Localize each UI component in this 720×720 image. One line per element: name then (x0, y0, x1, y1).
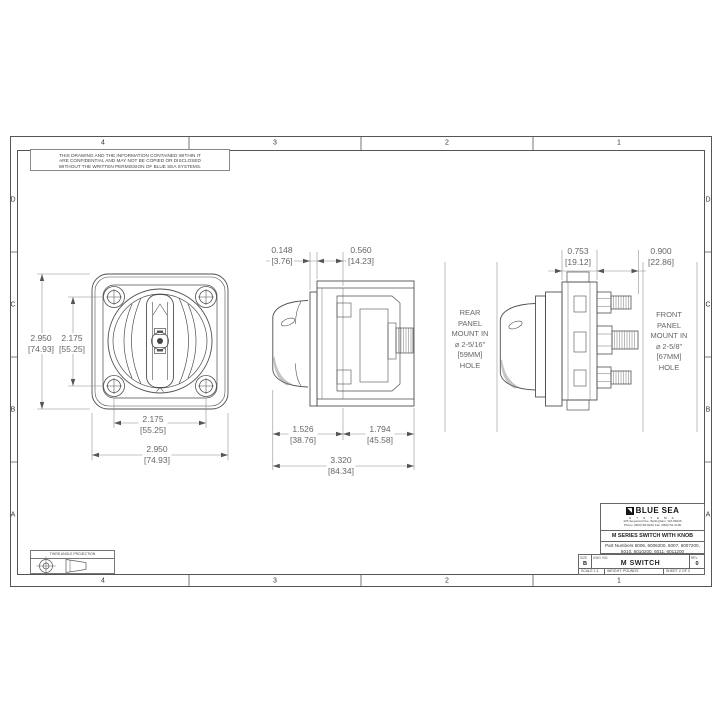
zone-col-4-top: 4 (101, 140, 105, 147)
size-value: B (583, 561, 587, 567)
zone-row-a-right: A (706, 512, 711, 519)
dim-front-height-screws: 2.175 [55.25] (58, 333, 87, 354)
dim-rear-panel-to-body: 0.753 [19.12] (564, 246, 593, 267)
drawing-title: M SERIES SWITCH WITH KNOB (601, 531, 704, 542)
knob-side-profile (500, 304, 535, 391)
dimension-arrows (40, 259, 639, 468)
title-block: ◥ BLUE SEA S Y S T E M S 425 Sequoia Dri… (600, 503, 705, 554)
zone-row-c-right: C (705, 302, 710, 309)
dim-rear-body-to-stud: 0.900 [22.86] (647, 246, 676, 267)
dim-front-width-screws: 2.175 [55.25] (139, 414, 168, 435)
zone-col-2-top: 2 (445, 140, 449, 147)
dwg-no-cell: DWG. NO. M SWITCH (592, 555, 690, 568)
zone-row-a-left: A (11, 512, 16, 519)
dim-front-width-overall: 2.950 [74.93] (143, 444, 172, 465)
company-block: ◥ BLUE SEA S Y S T E M S 425 Sequoia Dri… (601, 504, 704, 531)
company-address-line2: Phone (360)738-8230 Fax (360)734-4195 (624, 524, 681, 528)
drawing-linework (0, 0, 720, 720)
front-view-drawing (92, 274, 228, 409)
rev-value: 0 (695, 561, 698, 567)
zone-col-2-bottom: 2 (445, 578, 449, 585)
weight-cell: WEIGHT: POUNDS (605, 569, 664, 575)
terminal-studs (597, 292, 638, 388)
rear-panel-mount-note: REAR PANEL MOUNT IN ⌀ 2-5/16" [59MM] HOL… (452, 308, 489, 371)
rev-cell: REV 0 (690, 555, 704, 568)
zone-col-4-bottom: 4 (101, 578, 105, 585)
dwg-no-value: M SWITCH (621, 560, 660, 567)
dim-side-panel-to-stud: 1.794 [45.58] (366, 424, 395, 445)
projection-box: THIRD ANGLE PROJECTION (30, 550, 115, 574)
company-name: BLUE SEA (636, 506, 680, 515)
projection-label: THIRD ANGLE PROJECTION (31, 551, 114, 559)
sheet-cell: SHEET 2 OF 3 (664, 569, 704, 575)
zone-row-d-left: D (10, 197, 15, 204)
dim-side-knob-to-panel: 1.526 [38.76] (289, 424, 318, 445)
side-view-drawing (273, 281, 414, 406)
drawing-sheet: 4 3 2 1 4 3 2 1 D C B A D C B A THIS DRA… (0, 0, 720, 720)
zone-row-c-left: C (10, 302, 15, 309)
title-block-lower: SIZE B DWG. NO. M SWITCH REV 0 SCALE 1:1… (578, 554, 705, 575)
zone-row-b-right: B (706, 407, 711, 414)
dim-front-height-overall: 2.950 [74.93] (27, 333, 56, 354)
zone-row-b-left: B (11, 407, 16, 414)
dim-side-overall: 3.320 [84.34] (327, 455, 356, 476)
dim-side-panel-thickness: 0.148 [3.76] (270, 245, 294, 266)
zone-col-1-bottom: 1 (617, 578, 621, 585)
dim-side-body-step: 0.560 [14.23] (347, 245, 376, 266)
confidentiality-note: THIS DRAWING AND THE INFORMATION CONTAIN… (30, 149, 230, 171)
zone-col-1-top: 1 (617, 140, 621, 147)
size-cell: SIZE B (579, 555, 592, 568)
blue-sea-logo-icon: ◥ (626, 507, 634, 515)
scale-cell: SCALE 1:1 (579, 569, 605, 575)
zone-col-3-top: 3 (273, 140, 277, 147)
zone-row-d-right: D (705, 197, 710, 204)
zone-col-3-bottom: 3 (273, 578, 277, 585)
front-panel-mount-note: FRONT PANEL MOUNT IN ⌀ 2-5/8" [67MM] HOL… (651, 310, 688, 373)
rear-view-drawing (500, 272, 638, 410)
